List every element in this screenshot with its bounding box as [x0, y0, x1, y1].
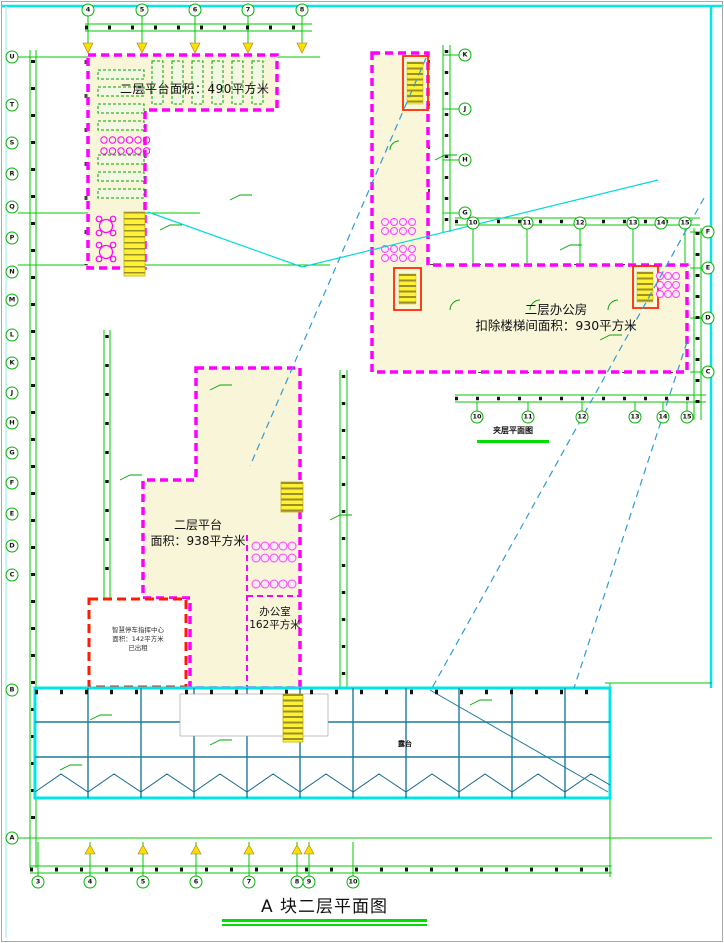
grid-bubble-bottom: 6: [190, 876, 203, 889]
grid-bubble-top: 8: [296, 4, 309, 17]
grid-bubble-left: R: [6, 168, 19, 181]
grid-bubble-bottom: 5: [137, 876, 150, 889]
grid-bubble-left: N: [6, 266, 19, 279]
grid-bubble-wing_column: J: [459, 103, 472, 116]
grid-bubble-above_wing: 11: [521, 217, 534, 230]
grid-bubble-left: B: [6, 684, 19, 697]
grid-bubble-under_wing: 10: [471, 411, 484, 424]
grid-bubble-left: C: [6, 569, 19, 582]
grid-bubble-above_wing: 12: [574, 217, 587, 230]
grid-bubble-under_wing: 13: [629, 411, 642, 424]
grid-bubble-bottom: 9: [303, 876, 316, 889]
grid-bubble-right_edge: E: [702, 262, 715, 275]
grid-bubble-top: 7: [242, 4, 255, 17]
grid-bubble-under_wing: 14: [657, 411, 670, 424]
grid-bubble-bottom: 3: [32, 876, 45, 889]
grid-bubble-left: H: [6, 417, 19, 430]
grid-bubble-left: E: [6, 508, 19, 521]
grid-bubble-right_edge: C: [702, 366, 715, 379]
grid-bubble-above_wing: 15: [679, 217, 692, 230]
grid-bubble-under_wing: 11: [522, 411, 535, 424]
grid-bubble-bottom: 4: [84, 876, 97, 889]
grid-bubble-left: K: [6, 357, 19, 370]
grid-bubble-left: Q: [6, 201, 19, 214]
grid-bubble-left: S: [6, 137, 19, 150]
grid-bubble-left: A: [6, 832, 19, 845]
floor-plan-canvas: 二层平台面积：490平方米 二层办公房 扣除楼梯间面积：930平方米 二层平台 …: [0, 0, 724, 943]
grid-bubble-above_wing: 13: [627, 217, 640, 230]
grid-bubble-left: T: [6, 99, 19, 112]
grid-bubble-right_edge: F: [702, 226, 715, 239]
grid-bubble-right_edge: D: [702, 312, 715, 325]
grid-bubble-left: G: [6, 447, 19, 460]
grid-bubble-top: 4: [82, 4, 95, 17]
grid-bubble-left: J: [6, 387, 19, 400]
grid-bubble-left: F: [6, 477, 19, 490]
grid-bubble-above_wing: 10: [467, 217, 480, 230]
grid-bubble-bottom: 7: [243, 876, 256, 889]
grid-bubble-left: D: [6, 540, 19, 553]
grid-bubble-under_wing: 15: [681, 411, 694, 424]
grid-bubble-left: P: [6, 232, 19, 245]
grid-bubble-top: 5: [136, 4, 149, 17]
grid-bubble-under_wing: 12: [576, 411, 589, 424]
grid-bubble-left: L: [6, 329, 19, 342]
grid-bubble-wing_column: K: [459, 49, 472, 62]
grid-bubble-bottom: 10: [347, 876, 360, 889]
grid-bubble-wing_column: H: [459, 154, 472, 167]
grid-bubble-above_wing: 14: [655, 217, 668, 230]
grid-bubble-top: 6: [189, 4, 202, 17]
grid-bubble-left: M: [6, 294, 19, 307]
grid-bubble-layer: 45678345678910UTSRQPNMLKJHGFEDCBAFEDCKJH…: [0, 0, 724, 943]
grid-bubble-left: U: [6, 51, 19, 64]
